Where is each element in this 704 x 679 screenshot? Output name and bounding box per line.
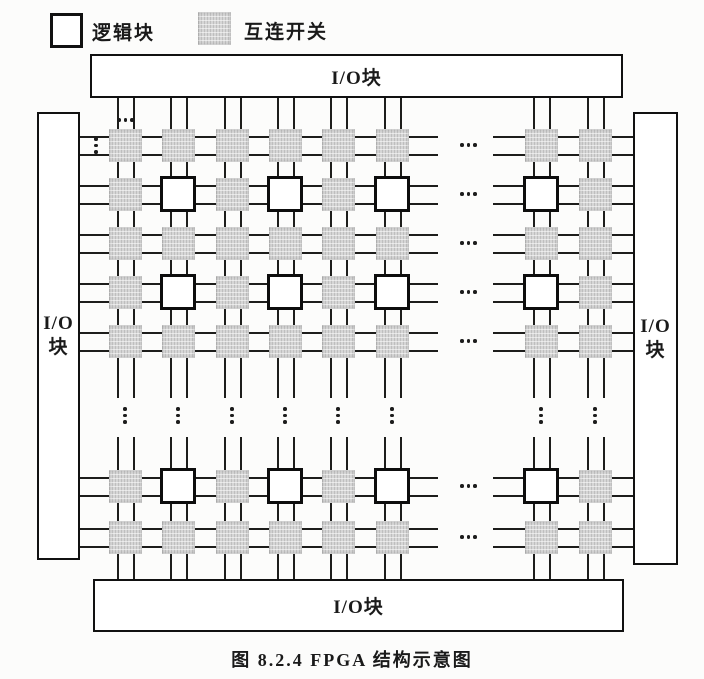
- io-block-right-label-line1: I/O: [640, 315, 670, 339]
- ellipsis-dot: [123, 414, 127, 418]
- interconnect-switch: [216, 521, 249, 554]
- ellipsis-dot: [593, 420, 597, 424]
- interconnect-switch: [109, 227, 142, 260]
- ellipsis-dot: [467, 290, 471, 294]
- wire-vertical: [533, 437, 535, 580]
- interconnect-switch: [216, 227, 249, 260]
- logic-block: [267, 176, 303, 212]
- ellipsis-dot: [230, 407, 234, 411]
- interconnect-switch: [579, 276, 612, 309]
- legend-interconnect-switch-icon: [198, 12, 231, 45]
- interconnect-switch: [322, 470, 355, 503]
- horizontal-ellipsis: [460, 290, 477, 294]
- wire-horizontal: [493, 528, 634, 530]
- ellipsis-dot: [336, 407, 340, 411]
- ellipsis-dot: [473, 241, 477, 245]
- interconnect-switch: [376, 325, 409, 358]
- ellipsis-dot: [473, 290, 477, 294]
- ellipsis-dot: [123, 420, 127, 424]
- wire-vertical: [133, 437, 135, 580]
- ellipsis-dot: [473, 484, 477, 488]
- wire-horizontal: [493, 477, 634, 479]
- wire-vertical: [587, 437, 589, 580]
- ellipsis-dot: [336, 420, 340, 424]
- interconnect-switch: [525, 129, 558, 162]
- interconnect-switch: [579, 227, 612, 260]
- horizontal-ellipsis: [117, 118, 134, 122]
- wire-horizontal: [493, 234, 634, 236]
- ellipsis-dot: [539, 407, 543, 411]
- horizontal-ellipsis: [460, 484, 477, 488]
- wire-vertical: [384, 437, 386, 580]
- io-block-top-label: I/O块: [331, 63, 381, 90]
- interconnect-switch: [579, 470, 612, 503]
- ellipsis-dot: [283, 414, 287, 418]
- io-block-left: I/O 块: [37, 112, 80, 560]
- interconnect-switch: [322, 325, 355, 358]
- ellipsis-dot: [467, 241, 471, 245]
- ellipsis-dot: [94, 137, 98, 141]
- ellipsis-dot: [539, 420, 543, 424]
- interconnect-switch: [322, 227, 355, 260]
- interconnect-switch: [109, 276, 142, 309]
- ellipsis-dot: [473, 535, 477, 539]
- vertical-ellipsis: [539, 407, 543, 424]
- ellipsis-dot: [593, 414, 597, 418]
- io-block-top: I/O块: [90, 54, 623, 98]
- ellipsis-dot: [390, 420, 394, 424]
- wire-horizontal: [493, 301, 634, 303]
- ellipsis-dot: [130, 118, 134, 122]
- ellipsis-dot: [460, 143, 464, 147]
- horizontal-ellipsis: [460, 535, 477, 539]
- ellipsis-dot: [473, 339, 477, 343]
- legend-logic-block-label: 逻辑块: [92, 18, 155, 45]
- wire-horizontal: [493, 546, 634, 548]
- logic-block: [160, 468, 196, 504]
- interconnect-switch: [322, 276, 355, 309]
- logic-block: [267, 274, 303, 310]
- vertical-ellipsis: [336, 407, 340, 424]
- logic-block: [523, 274, 559, 310]
- horizontal-ellipsis: [460, 143, 477, 147]
- interconnect-switch: [162, 129, 195, 162]
- interconnect-switch: [269, 129, 302, 162]
- ellipsis-dot: [460, 192, 464, 196]
- wire-vertical: [549, 437, 551, 580]
- ellipsis-dot: [390, 407, 394, 411]
- io-block-right: I/O 块: [633, 112, 678, 565]
- ellipsis-dot: [467, 143, 471, 147]
- vertical-ellipsis: [176, 407, 180, 424]
- wire-horizontal: [493, 154, 634, 156]
- interconnect-switch: [216, 325, 249, 358]
- ellipsis-dot: [460, 535, 464, 539]
- ellipsis-dot: [117, 118, 121, 122]
- ellipsis-dot: [460, 484, 464, 488]
- interconnect-switch: [109, 521, 142, 554]
- logic-block: [374, 176, 410, 212]
- interconnect-switch: [269, 521, 302, 554]
- interconnect-switch: [525, 521, 558, 554]
- vertical-ellipsis: [390, 407, 394, 424]
- wire-horizontal: [493, 252, 634, 254]
- interconnect-switch: [376, 129, 409, 162]
- ellipsis-dot: [460, 290, 464, 294]
- interconnect-switch: [162, 325, 195, 358]
- ellipsis-dot: [94, 150, 98, 154]
- ellipsis-dot: [473, 143, 477, 147]
- ellipsis-dot: [283, 420, 287, 424]
- ellipsis-dot: [593, 407, 597, 411]
- ellipsis-dot: [94, 144, 98, 148]
- ellipsis-dot: [467, 192, 471, 196]
- wire-vertical: [240, 437, 242, 580]
- io-block-bottom: I/O块: [93, 579, 624, 632]
- io-block-bottom-label: I/O块: [333, 592, 383, 619]
- wire-horizontal: [493, 332, 634, 334]
- wire-horizontal: [493, 203, 634, 205]
- ellipsis-dot: [123, 407, 127, 411]
- interconnect-switch: [579, 325, 612, 358]
- logic-block: [523, 176, 559, 212]
- interconnect-switch: [216, 470, 249, 503]
- interconnect-switch: [269, 325, 302, 358]
- figure-caption: 图 8.2.4 FPGA 结构示意图: [0, 646, 704, 672]
- interconnect-switch: [322, 521, 355, 554]
- vertical-ellipsis: [593, 407, 597, 424]
- io-block-left-label-line2: 块: [48, 336, 68, 360]
- logic-block: [267, 468, 303, 504]
- wire-horizontal: [493, 283, 634, 285]
- wire-vertical: [603, 437, 605, 580]
- interconnect-switch: [579, 521, 612, 554]
- wire-vertical: [346, 437, 348, 580]
- legend-interconnect-switch-label: 互连开关: [244, 17, 328, 44]
- ellipsis-dot: [230, 420, 234, 424]
- horizontal-ellipsis: [460, 241, 477, 245]
- fpga-structure-figure: 逻辑块 互连开关 I/O块 I/O块 I/O 块 I/O 块 图 8.2.4 F…: [0, 0, 704, 679]
- wire-horizontal: [493, 136, 634, 138]
- interconnect-switch: [216, 129, 249, 162]
- interconnect-switch: [216, 276, 249, 309]
- wire-vertical: [400, 437, 402, 580]
- io-block-right-label-line2: 块: [645, 339, 665, 363]
- interconnect-switch: [109, 129, 142, 162]
- ellipsis-dot: [230, 414, 234, 418]
- logic-block: [160, 176, 196, 212]
- vertical-ellipsis: [283, 407, 287, 424]
- wire-horizontal: [493, 350, 634, 352]
- interconnect-switch: [109, 178, 142, 211]
- ellipsis-dot: [467, 484, 471, 488]
- interconnect-switch: [109, 325, 142, 358]
- logic-block: [523, 468, 559, 504]
- ellipsis-dot: [176, 407, 180, 411]
- wire-vertical: [186, 437, 188, 580]
- interconnect-switch: [322, 129, 355, 162]
- vertical-ellipsis: [230, 407, 234, 424]
- interconnect-switch: [162, 521, 195, 554]
- ellipsis-dot: [467, 339, 471, 343]
- ellipsis-dot: [176, 414, 180, 418]
- interconnect-switch: [216, 178, 249, 211]
- interconnect-switch: [579, 178, 612, 211]
- ellipsis-dot: [390, 414, 394, 418]
- interconnect-switch: [376, 521, 409, 554]
- ellipsis-dot: [460, 339, 464, 343]
- vertical-ellipsis: [123, 407, 127, 424]
- vertical-ellipsis: [94, 137, 98, 154]
- wire-vertical: [224, 437, 226, 580]
- ellipsis-dot: [176, 420, 180, 424]
- ellipsis-dot: [124, 118, 128, 122]
- interconnect-switch: [525, 227, 558, 260]
- ellipsis-dot: [539, 414, 543, 418]
- interconnect-switch: [162, 227, 195, 260]
- wire-vertical: [170, 437, 172, 580]
- interconnect-switch: [322, 178, 355, 211]
- wire-vertical: [117, 437, 119, 580]
- ellipsis-dot: [283, 407, 287, 411]
- horizontal-ellipsis: [460, 339, 477, 343]
- wire-horizontal: [493, 185, 634, 187]
- legend-logic-block-icon: [50, 13, 83, 48]
- io-block-left-label-line1: I/O: [43, 312, 73, 336]
- wire-vertical: [293, 437, 295, 580]
- interconnect-switch: [376, 227, 409, 260]
- ellipsis-dot: [467, 535, 471, 539]
- logic-block: [374, 274, 410, 310]
- horizontal-ellipsis: [460, 192, 477, 196]
- interconnect-switch: [579, 129, 612, 162]
- logic-block: [160, 274, 196, 310]
- wire-vertical: [277, 437, 279, 580]
- logic-block: [374, 468, 410, 504]
- interconnect-switch: [525, 325, 558, 358]
- wire-horizontal: [493, 495, 634, 497]
- ellipsis-dot: [336, 414, 340, 418]
- ellipsis-dot: [460, 241, 464, 245]
- interconnect-switch: [269, 227, 302, 260]
- ellipsis-dot: [473, 192, 477, 196]
- wire-vertical: [330, 437, 332, 580]
- interconnect-switch: [109, 470, 142, 503]
